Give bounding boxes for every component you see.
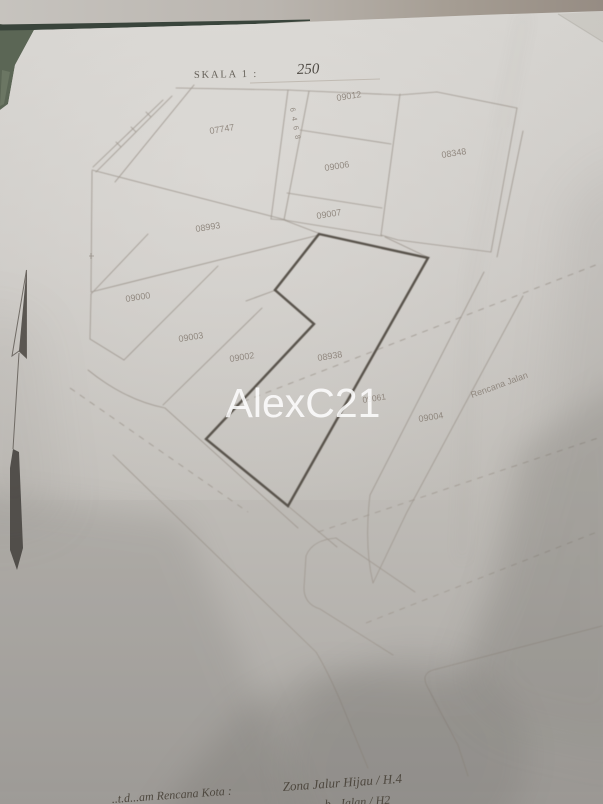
svg-text:AlexC21: AlexC21 (226, 380, 381, 426)
svg-text:SKALA 1 :: SKALA 1 : (194, 69, 258, 81)
svg-text:250: 250 (297, 61, 321, 78)
